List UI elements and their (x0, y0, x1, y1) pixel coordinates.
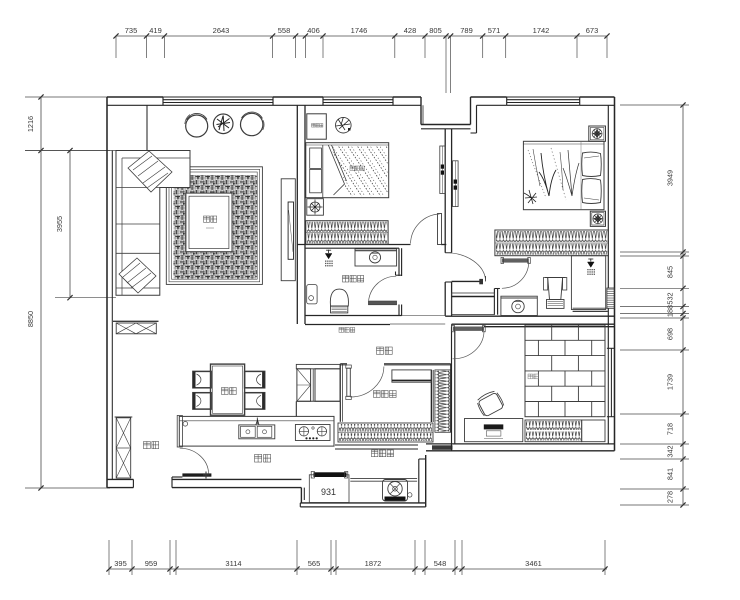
svg-text:735: 735 (125, 26, 138, 35)
svg-text:8850: 8850 (26, 311, 35, 327)
svg-text:558: 558 (278, 26, 291, 35)
svg-text:3114: 3114 (225, 559, 241, 568)
svg-text:188: 188 (666, 305, 675, 317)
svg-text:406: 406 (307, 26, 320, 35)
svg-text:342: 342 (666, 445, 675, 457)
svg-text:841: 841 (666, 468, 675, 480)
svg-text:1746: 1746 (351, 26, 368, 35)
svg-text:2643: 2643 (213, 26, 230, 35)
svg-text:1872: 1872 (365, 559, 382, 568)
svg-text:931: 931 (321, 487, 336, 497)
svg-text:698: 698 (666, 328, 675, 340)
svg-text:395: 395 (114, 559, 127, 568)
svg-text:419: 419 (149, 26, 162, 35)
svg-text:3461: 3461 (525, 559, 542, 568)
svg-text:428: 428 (404, 26, 417, 35)
svg-text:1739: 1739 (666, 374, 675, 390)
svg-text:805: 805 (429, 26, 442, 35)
svg-text:548: 548 (434, 559, 447, 568)
svg-text:571: 571 (488, 26, 501, 35)
svg-text:845: 845 (666, 266, 675, 278)
svg-text:532: 532 (666, 292, 675, 304)
svg-text:1742: 1742 (533, 26, 550, 35)
svg-text:3955: 3955 (55, 216, 64, 232)
svg-text:1216: 1216 (26, 116, 35, 132)
svg-text:3949: 3949 (666, 170, 675, 186)
svg-text:959: 959 (145, 559, 158, 568)
svg-text:718: 718 (666, 423, 675, 435)
svg-text:673: 673 (586, 26, 599, 35)
svg-text:789: 789 (460, 26, 473, 35)
svg-text:565: 565 (308, 559, 321, 568)
svg-text:278: 278 (666, 491, 675, 503)
